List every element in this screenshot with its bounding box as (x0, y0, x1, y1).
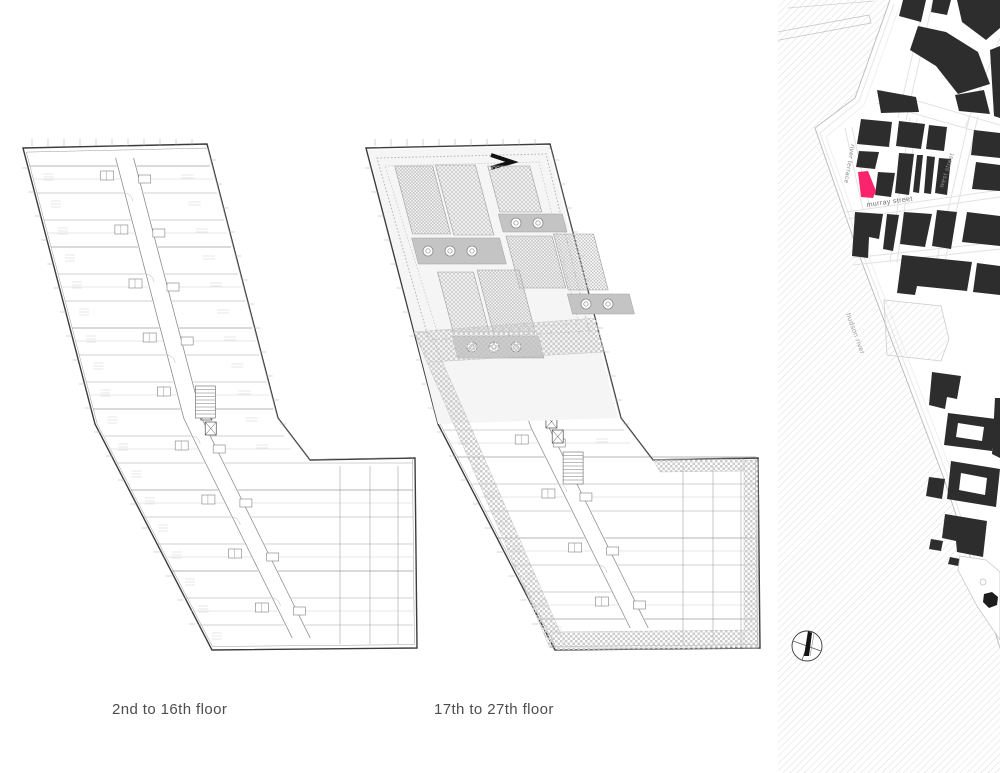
site-map-svg: river terrace murray street west street … (778, 0, 1000, 773)
floor-plans-svg (0, 0, 778, 773)
plan2-caption: 17th to 27th floor (434, 701, 554, 718)
ballfield-block (884, 300, 949, 361)
highlighted-building (858, 171, 876, 198)
floor-plan-2-16 (22, 139, 417, 650)
label-murray-street: murray street (866, 196, 913, 209)
north-arrow-icon (792, 631, 822, 661)
drawing-sheet: river terrace murray street west street … (0, 0, 1000, 773)
label-river-terrace: river terrace (842, 144, 856, 184)
plan1-caption: 2nd to 16th floor (112, 701, 227, 718)
floor-plan-17-27 (365, 139, 760, 650)
